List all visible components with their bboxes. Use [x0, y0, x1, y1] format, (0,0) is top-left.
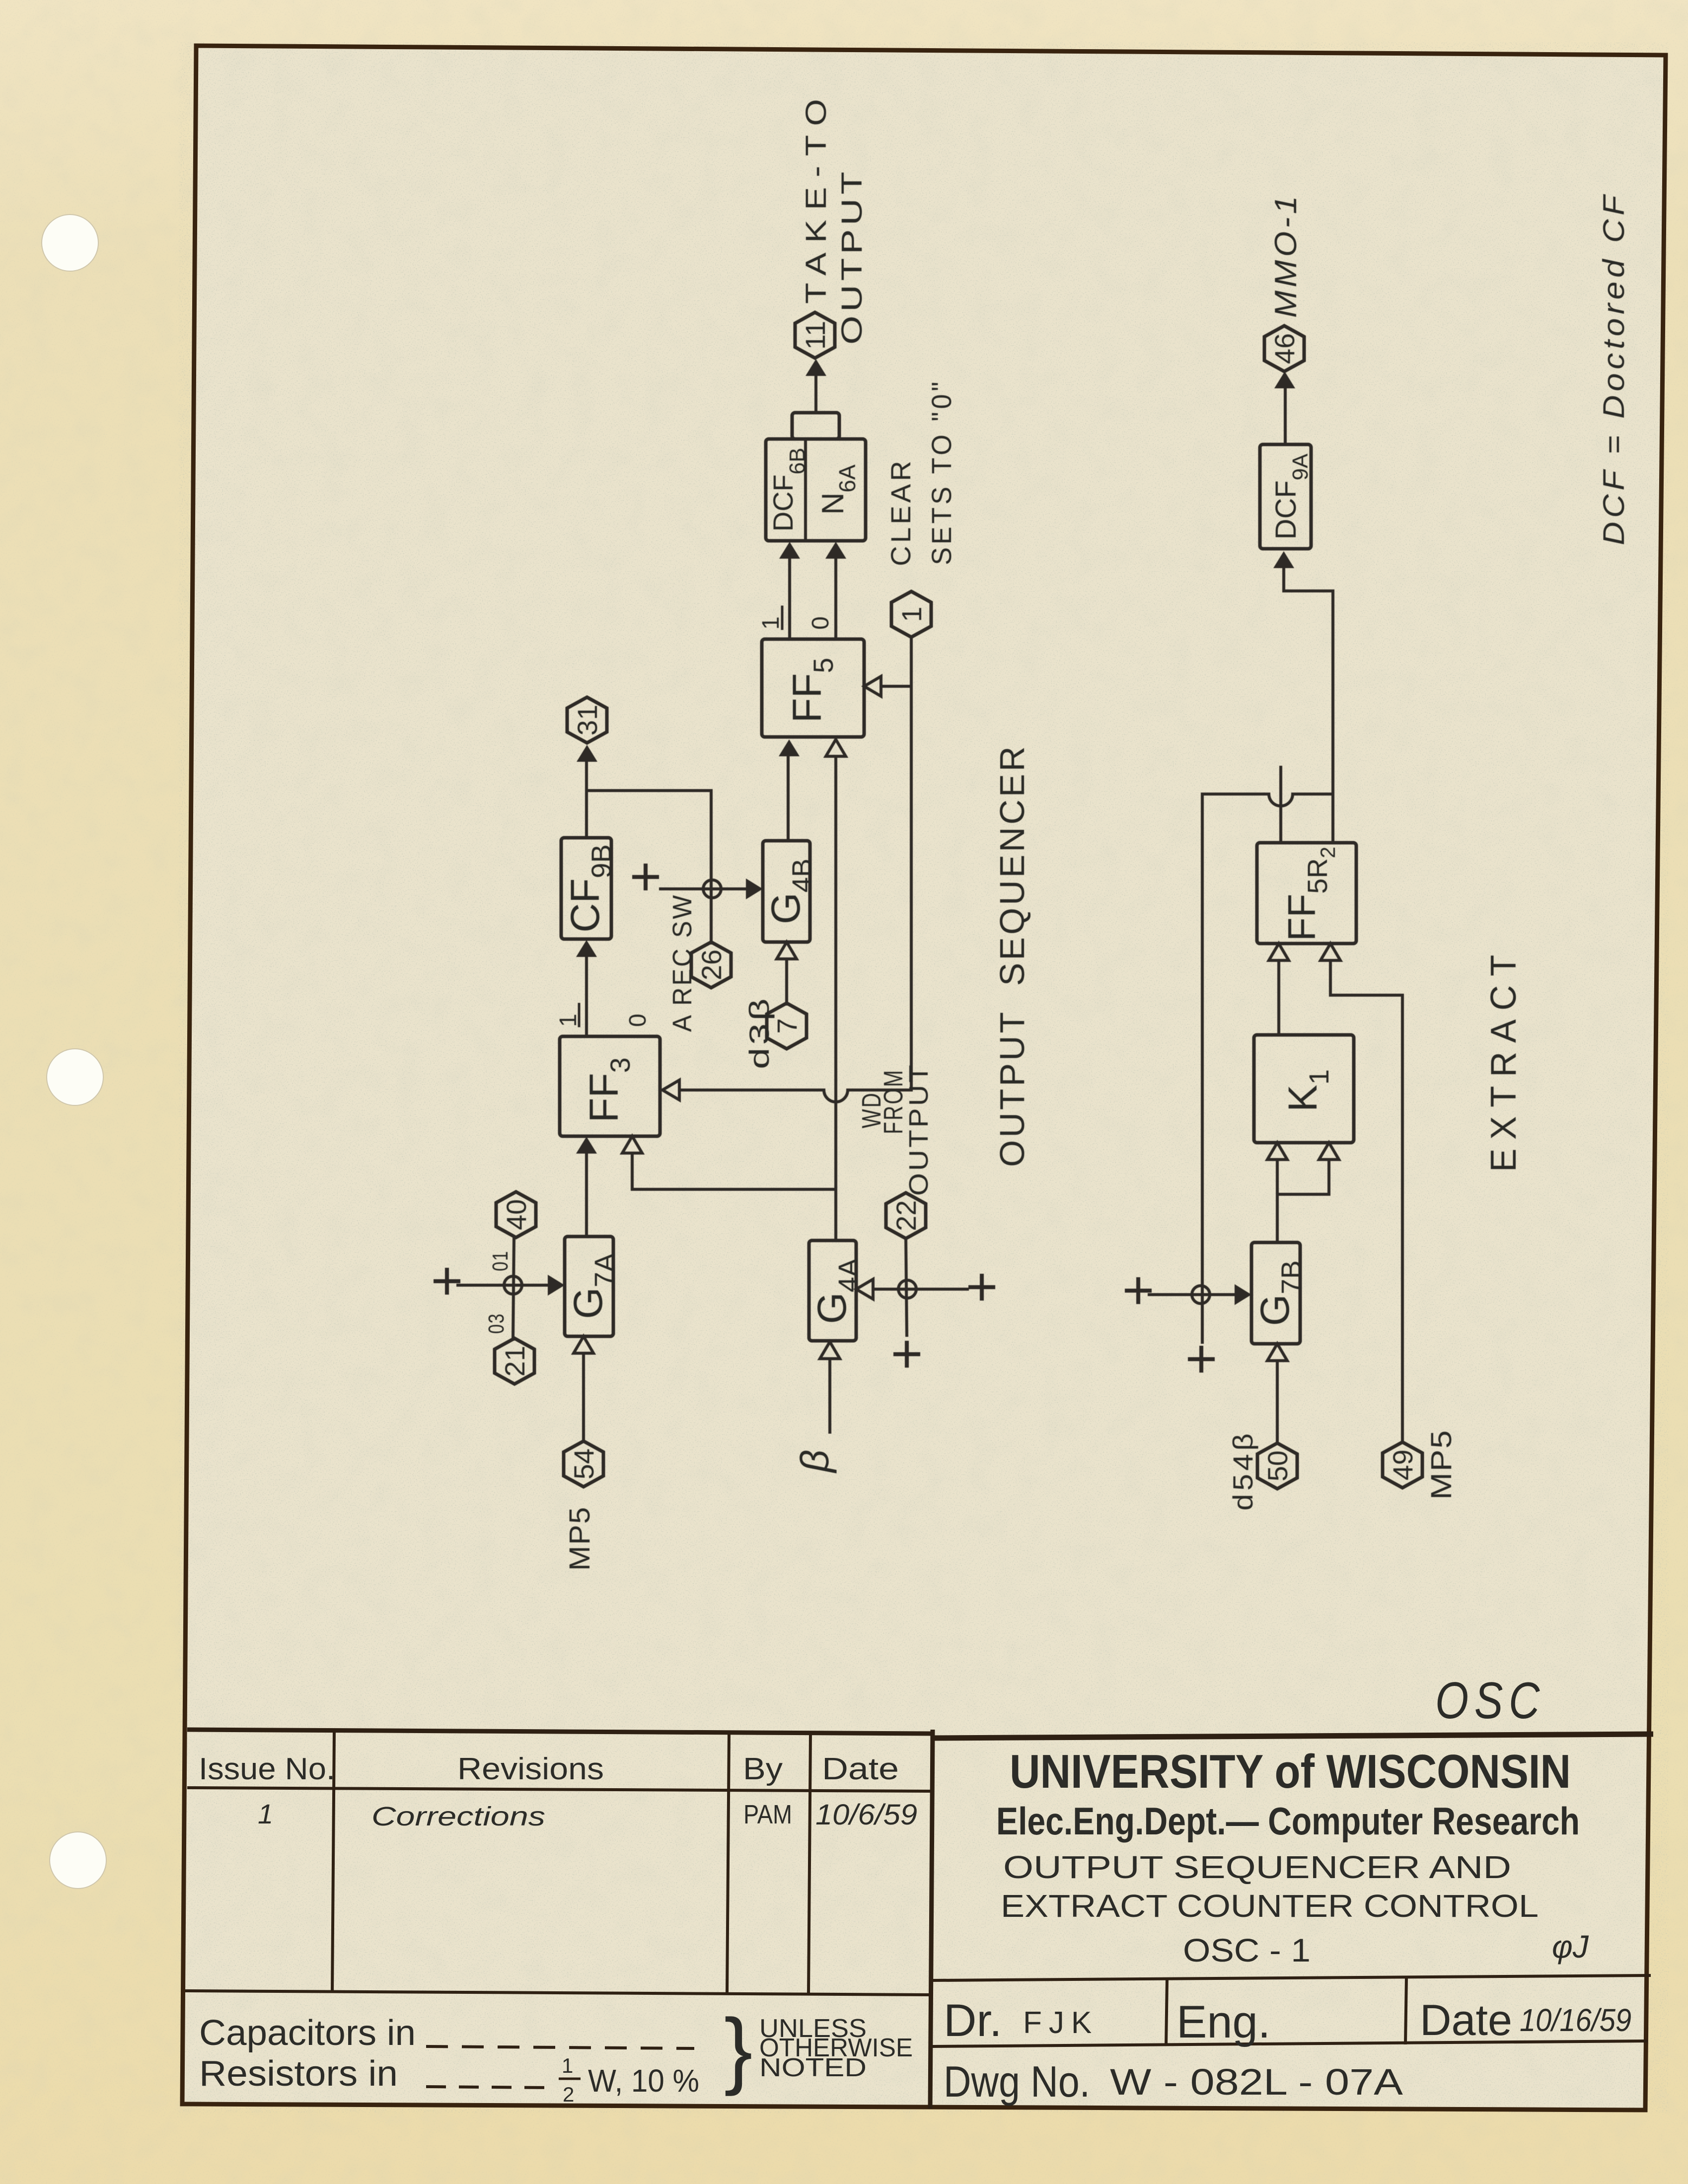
svg-text:1: 1 [258, 1798, 273, 1829]
svg-text:d3β: d3β [743, 996, 775, 1069]
svg-text:21: 21 [499, 1346, 530, 1377]
svg-text:CLEAR: CLEAR [885, 458, 916, 566]
svg-text:Elec.Eng.Dept.— Computer Resea: Elec.Eng.Dept.— Computer Research [996, 1799, 1580, 1843]
svg-text:Capacitors in: Capacitors in [199, 2013, 416, 2053]
svg-text:03: 03 [484, 1313, 509, 1334]
svg-text:54: 54 [568, 1449, 599, 1479]
svg-text:1: 1 [896, 606, 927, 622]
svg-text:φJ: φJ [1552, 1929, 1589, 1965]
svg-text:OSC - 1: OSC - 1 [1183, 1932, 1311, 1968]
svg-text:1: 1 [562, 2054, 573, 2077]
svg-text:01: 01 [488, 1250, 513, 1271]
svg-text:UNIVERSITY of WISCONSIN: UNIVERSITY of WISCONSIN [1010, 1745, 1571, 1798]
svg-text:W, 10 %: W, 10 % [588, 2063, 699, 2099]
svg-text:Eng.: Eng. [1176, 1997, 1270, 2047]
svg-text:Dr.: Dr. [944, 1995, 1002, 2046]
svg-text:2: 2 [563, 2083, 574, 2106]
svg-text:Date: Date [822, 1752, 899, 1786]
svg-text:OSC: OSC [1435, 1672, 1545, 1730]
svg-text:10/6/59: 10/6/59 [815, 1799, 917, 1831]
svg-text:W - 082L - 07A: W - 082L - 07A [1110, 2061, 1403, 2103]
svg-text:11: 11 [800, 321, 831, 350]
svg-text:Dwg No.: Dwg No. [944, 2057, 1090, 2106]
svg-text:PAM: PAM [743, 1800, 792, 1829]
svg-text:OUTPUT SEQUENCER: OUTPUT SEQUENCER [993, 744, 1031, 1167]
svg-text:31: 31 [572, 705, 603, 735]
svg-text:TAKE-TO: TAKE-TO [800, 89, 832, 304]
svg-text:0: 0 [625, 1014, 651, 1027]
svg-text:DCF = Doctored CF: DCF = Doctored CF [1597, 192, 1630, 545]
svg-text:OUTPUT: OUTPUT [836, 168, 868, 345]
svg-text:50: 50 [1262, 1451, 1293, 1481]
svg-text:49: 49 [1387, 1450, 1418, 1480]
svg-text:Resistors in: Resistors in [199, 2054, 398, 2094]
svg-text:1: 1 [555, 1014, 582, 1027]
svg-text:MMO-1: MMO-1 [1269, 193, 1303, 318]
svg-text:By: By [743, 1752, 783, 1786]
svg-text:EXTRACT COUNTER CONTROL: EXTRACT COUNTER CONTROL [1001, 1888, 1539, 1924]
svg-text:Corrections: Corrections [371, 1802, 545, 1831]
svg-text:A REC SW: A REC SW [667, 893, 697, 1032]
svg-text:Date: Date [1420, 1995, 1512, 2044]
svg-text:SETS TO "0": SETS TO "0" [926, 379, 957, 565]
svg-text:26: 26 [696, 949, 727, 980]
svg-text:1: 1 [758, 616, 784, 630]
svg-text:MP5: MP5 [1425, 1429, 1458, 1500]
svg-text:22: 22 [890, 1200, 922, 1231]
svg-text:Revisions: Revisions [457, 1752, 604, 1786]
svg-text:Issue No.: Issue No. [199, 1752, 335, 1786]
svg-text:OUTPUT: OUTPUT [904, 1063, 934, 1196]
svg-text:}: } [724, 2001, 752, 2097]
svg-text:0: 0 [807, 616, 834, 630]
svg-text:EXTRACT: EXTRACT [1484, 946, 1524, 1172]
svg-text:β: β [793, 1450, 837, 1473]
svg-text:MP5: MP5 [564, 1506, 596, 1571]
svg-text:FJK: FJK [1023, 2006, 1099, 2040]
svg-text:OUTPUT SEQUENCER AND: OUTPUT SEQUENCER AND [1003, 1849, 1511, 1885]
svg-text:d54β: d54β [1227, 1430, 1258, 1511]
svg-text:NOTED: NOTED [759, 2053, 867, 2082]
svg-text:7: 7 [771, 1018, 803, 1033]
svg-text:10/16/59: 10/16/59 [1520, 2002, 1631, 2038]
svg-text:46: 46 [1269, 333, 1300, 364]
svg-text:40: 40 [501, 1199, 532, 1230]
